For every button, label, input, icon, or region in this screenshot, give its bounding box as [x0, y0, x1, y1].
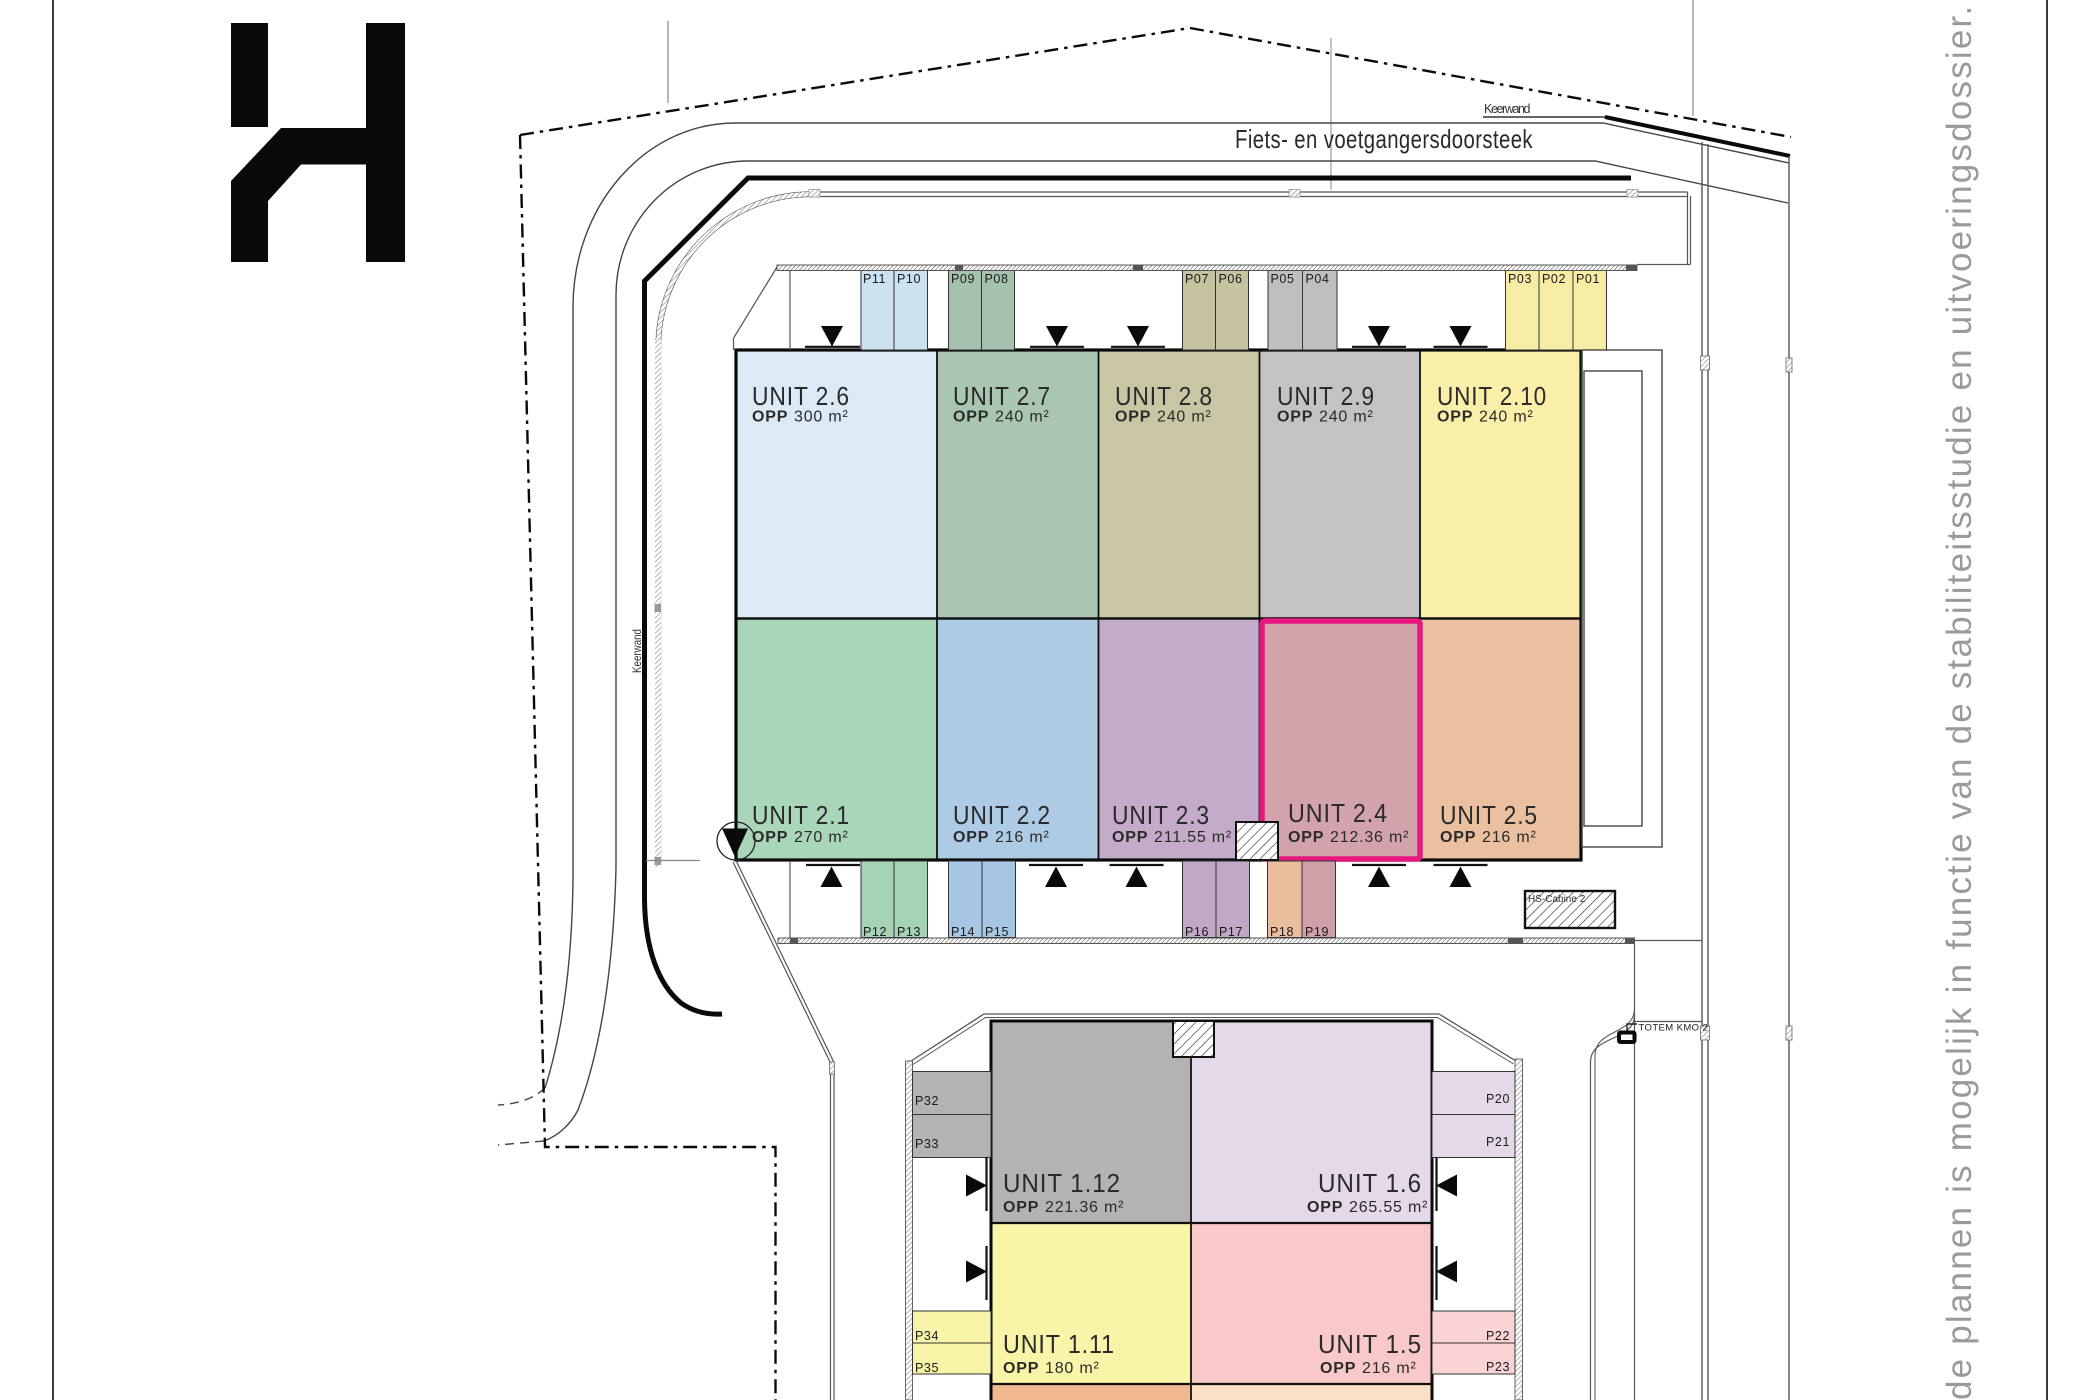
svg-text:P22: P22 [1486, 1329, 1510, 1343]
svg-text:P03: P03 [1508, 272, 1532, 286]
svg-text:240 m²: 240 m² [1319, 409, 1374, 426]
svg-text:de plannen is mogelijk in func: de plannen is mogelijk in functie van de… [1940, 4, 1979, 1400]
svg-text:OPP: OPP [1288, 829, 1324, 846]
svg-text:216 m²: 216 m² [995, 829, 1050, 846]
svg-text:P33: P33 [915, 1137, 939, 1151]
svg-text:P04: P04 [1306, 272, 1330, 286]
svg-text:180 m²: 180 m² [1045, 1360, 1100, 1377]
svg-text:221.36 m²: 221.36 m² [1045, 1199, 1124, 1216]
svg-text:UNIT 2.6: UNIT 2.6 [752, 381, 850, 411]
svg-text:P35: P35 [915, 1361, 939, 1375]
svg-text:P34: P34 [915, 1329, 939, 1343]
svg-text:P08: P08 [985, 272, 1009, 286]
svg-text:212.36 m²: 212.36 m² [1330, 829, 1409, 846]
svg-text:216 m²: 216 m² [1362, 1360, 1417, 1377]
svg-text:UNIT 1.11: UNIT 1.11 [1003, 1329, 1115, 1359]
svg-text:P10: P10 [897, 272, 921, 286]
svg-text:UNIT 1.5: UNIT 1.5 [1318, 1329, 1422, 1359]
svg-text:OPP: OPP [1437, 409, 1473, 426]
svg-text:UNIT 2.3: UNIT 2.3 [1112, 800, 1210, 830]
svg-text:UNIT 2.10: UNIT 2.10 [1437, 381, 1547, 411]
svg-text:UNIT 2.5: UNIT 2.5 [1440, 800, 1538, 830]
svg-text:211.55 m²: 211.55 m² [1154, 829, 1232, 846]
svg-text:Fiets- en voetgangersdoorsteek: Fiets- en voetgangersdoorsteek [1235, 124, 1533, 154]
svg-text:P07: P07 [1185, 272, 1209, 286]
svg-text:P12: P12 [863, 925, 887, 939]
svg-text:OPP: OPP [752, 829, 788, 846]
svg-text:Keerwand: Keerwand [632, 629, 644, 673]
svg-text:216 m²: 216 m² [1482, 829, 1537, 846]
svg-text:P21: P21 [1486, 1135, 1510, 1149]
svg-text:OPP: OPP [953, 829, 989, 846]
svg-text:UNIT 2.9: UNIT 2.9 [1277, 381, 1375, 411]
svg-text:P20: P20 [1486, 1092, 1510, 1106]
svg-text:270 m²: 270 m² [794, 829, 849, 846]
svg-text:OPP: OPP [1003, 1199, 1039, 1216]
svg-text:UNIT 2.2: UNIT 2.2 [953, 800, 1051, 830]
svg-text:OPP: OPP [1277, 409, 1313, 426]
svg-text:P01: P01 [1576, 272, 1600, 286]
svg-text:P17: P17 [1219, 925, 1243, 939]
svg-text:P16: P16 [1185, 925, 1209, 939]
svg-text:UNIT 2.4: UNIT 2.4 [1288, 798, 1388, 828]
svg-text:UNIT 2.8: UNIT 2.8 [1115, 381, 1213, 411]
svg-text:UNIT 1.6: UNIT 1.6 [1318, 1168, 1422, 1198]
svg-text:P23: P23 [1486, 1360, 1510, 1374]
svg-text:P14: P14 [951, 925, 975, 939]
svg-text:240 m²: 240 m² [995, 409, 1050, 426]
svg-text:OPP: OPP [1307, 1199, 1343, 1216]
svg-text:UNIT 2.1: UNIT 2.1 [752, 800, 850, 830]
svg-text:P02: P02 [1542, 272, 1566, 286]
svg-text:OPP: OPP [752, 409, 788, 426]
svg-text:OPP: OPP [1320, 1360, 1356, 1377]
svg-text:OPP: OPP [1440, 829, 1476, 846]
svg-text:OPP: OPP [1115, 409, 1151, 426]
svg-text:240 m²: 240 m² [1479, 409, 1534, 426]
svg-text:P06: P06 [1219, 272, 1243, 286]
svg-text:240 m²: 240 m² [1157, 409, 1212, 426]
svg-text:HS-Cabine 2: HS-Cabine 2 [1528, 894, 1586, 905]
svg-text:Keerwand: Keerwand [1484, 102, 1531, 116]
svg-text:OPP: OPP [953, 409, 989, 426]
svg-text:P18: P18 [1270, 925, 1294, 939]
svg-text:265.55 m²: 265.55 m² [1349, 1199, 1428, 1216]
svg-text:P05: P05 [1271, 272, 1295, 286]
svg-text:P09: P09 [951, 272, 975, 286]
svg-text:OPP: OPP [1112, 829, 1148, 846]
svg-text:P13: P13 [897, 925, 921, 939]
svg-text:300 m²: 300 m² [794, 409, 849, 426]
svg-text:OPP: OPP [1003, 1360, 1039, 1377]
svg-text:P15: P15 [985, 925, 1009, 939]
svg-text:UNIT 1.12: UNIT 1.12 [1003, 1168, 1121, 1198]
svg-text:P32: P32 [915, 1094, 939, 1108]
svg-text:UNIT 2.7: UNIT 2.7 [953, 381, 1051, 411]
svg-text:P11: P11 [863, 272, 886, 286]
svg-text:P19: P19 [1305, 925, 1329, 939]
svg-text:TOTEM KMO 2: TOTEM KMO 2 [1639, 1023, 1709, 1034]
